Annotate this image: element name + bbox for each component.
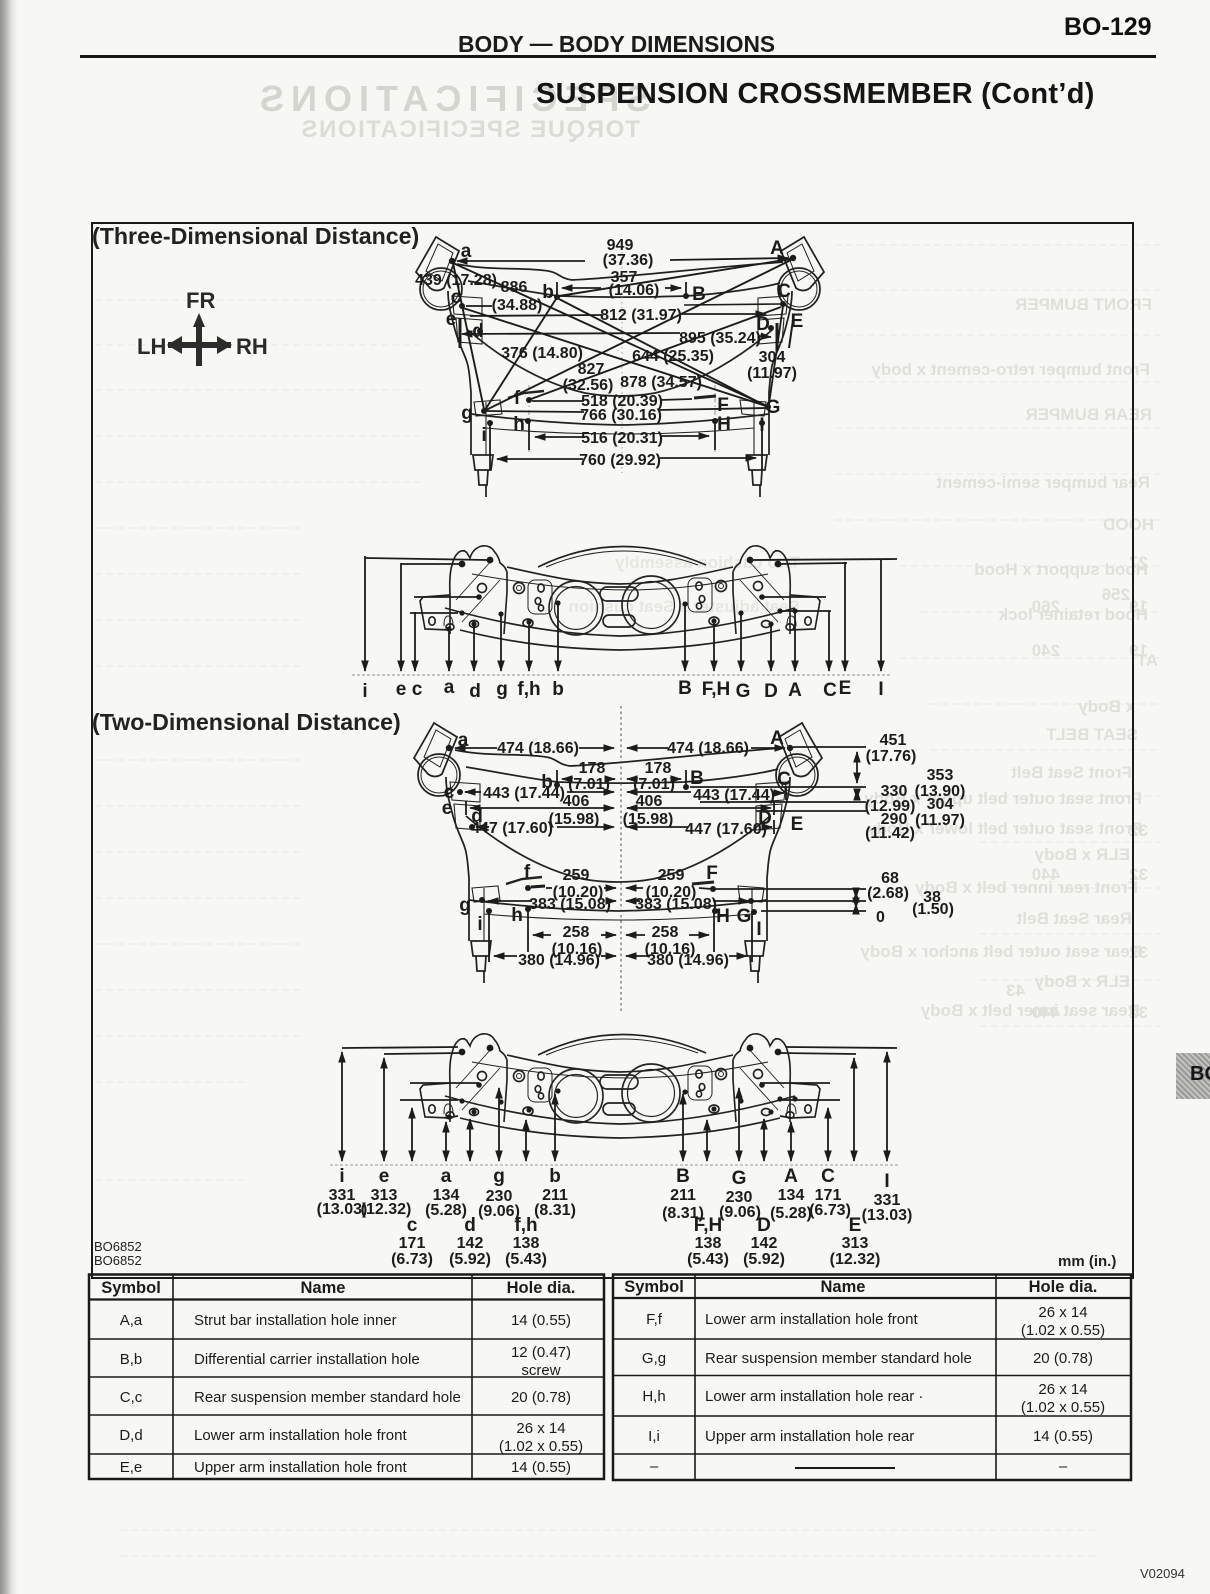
svg-text:Rear suspension member standar: Rear suspension member standard hole xyxy=(194,1389,461,1406)
svg-text:Symbol: Symbol xyxy=(624,1278,684,1296)
svg-text:26 x 14: 26 x 14 xyxy=(1038,1381,1087,1398)
svg-text:14 (0.55): 14 (0.55) xyxy=(511,1312,571,1329)
svg-text:C,c: C,c xyxy=(120,1389,143,1406)
svg-text:Rear suspension member standar: Rear suspension member standard hole xyxy=(705,1350,972,1367)
svg-text:Symbol: Symbol xyxy=(101,1279,161,1297)
svg-text:(1.02 x 0.55): (1.02 x 0.55) xyxy=(499,1438,583,1455)
svg-text:–: – xyxy=(1059,1458,1068,1475)
svg-text:B,b: B,b xyxy=(120,1351,143,1368)
svg-text:14 (0.55): 14 (0.55) xyxy=(511,1459,571,1476)
svg-text:Differential carrier installat: Differential carrier installation hole xyxy=(194,1351,420,1368)
svg-text:Name: Name xyxy=(301,1279,346,1297)
svg-text:20 (0.78): 20 (0.78) xyxy=(511,1389,571,1406)
svg-text:A,a: A,a xyxy=(120,1312,143,1329)
svg-text:Lower arm installation hole re: Lower arm installation hole rear · xyxy=(705,1388,923,1405)
svg-text:20 (0.78): 20 (0.78) xyxy=(1033,1350,1093,1367)
svg-text:G,g: G,g xyxy=(642,1350,666,1367)
svg-text:I,i: I,i xyxy=(648,1428,660,1445)
svg-text:Strut bar installation hole in: Strut bar installation hole inner xyxy=(194,1312,397,1329)
svg-text:D,d: D,d xyxy=(119,1427,142,1444)
svg-text:H,h: H,h xyxy=(642,1388,665,1405)
svg-text:Upper arm installation hole re: Upper arm installation hole rear xyxy=(705,1428,914,1445)
svg-text:Upper arm installation hole fr: Upper arm installation hole front xyxy=(194,1459,407,1476)
svg-text:–: – xyxy=(650,1458,659,1475)
svg-text:(1.02 x 0.55): (1.02 x 0.55) xyxy=(1021,1322,1105,1339)
svg-text:Name: Name xyxy=(821,1278,866,1296)
svg-text:Lower arm installation hole fr: Lower arm installation hole front xyxy=(705,1311,918,1328)
svg-text:Hole dia.: Hole dia. xyxy=(507,1279,576,1297)
svg-text:screw: screw xyxy=(521,1362,560,1379)
svg-text:F,f: F,f xyxy=(646,1311,663,1328)
svg-text:E,e: E,e xyxy=(120,1459,143,1476)
svg-text:(1.02 x 0.55): (1.02 x 0.55) xyxy=(1021,1399,1105,1416)
svg-text:12 (0.47): 12 (0.47) xyxy=(511,1344,571,1361)
svg-text:Hole dia.: Hole dia. xyxy=(1029,1278,1098,1296)
svg-text:26 x 14: 26 x 14 xyxy=(1038,1304,1087,1321)
svg-text:14 (0.55): 14 (0.55) xyxy=(1033,1428,1093,1445)
svg-text:Lower arm installation hole fr: Lower arm installation hole front xyxy=(194,1427,407,1444)
svg-text:26 x 14: 26 x 14 xyxy=(516,1420,565,1437)
